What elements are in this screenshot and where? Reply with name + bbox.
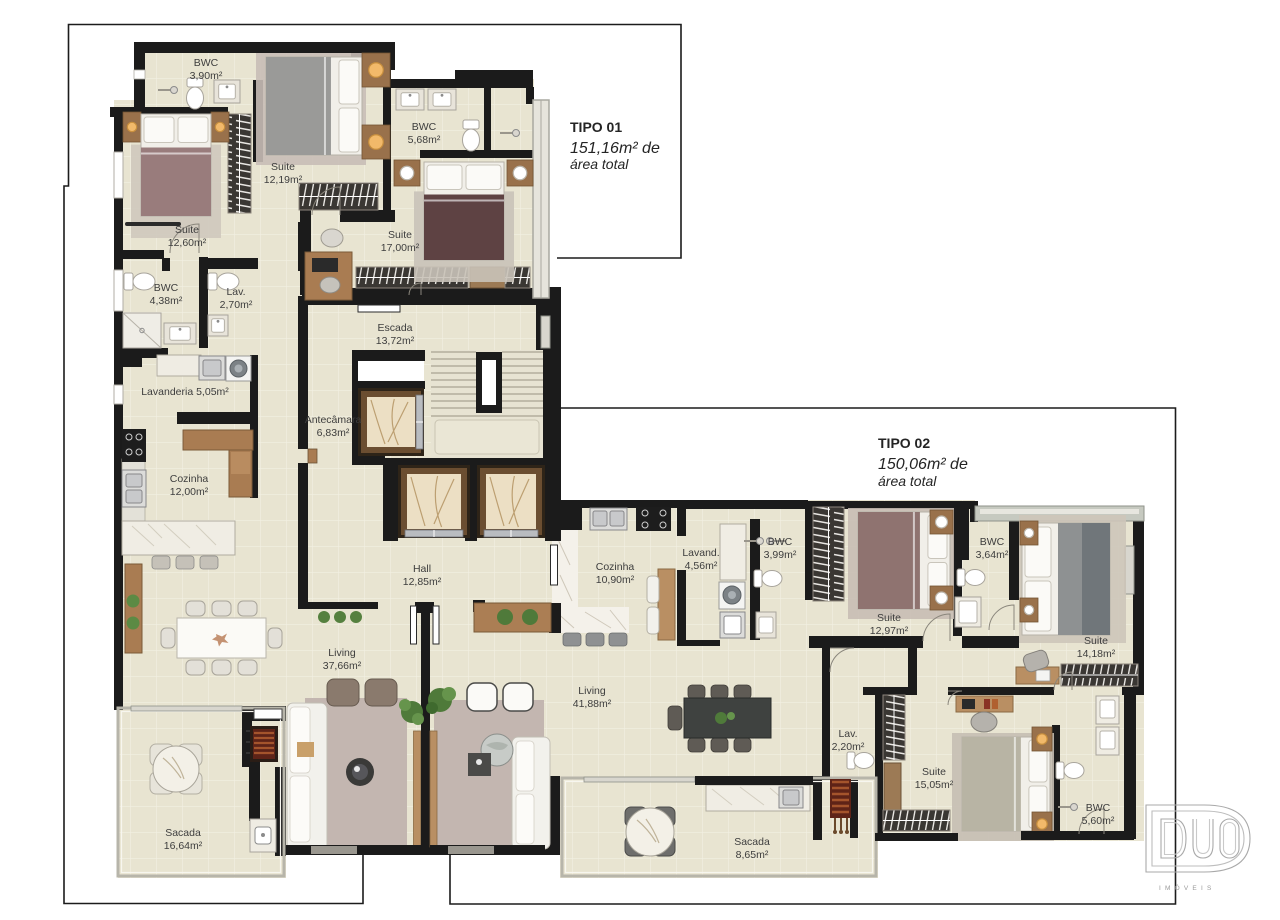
svg-text:151,16m² de: 151,16m² de (570, 140, 660, 157)
svg-text:Living: Living (328, 647, 356, 659)
svg-text:Lav.: Lav. (226, 286, 245, 298)
svg-text:área total: área total (570, 156, 629, 172)
svg-text:Suite: Suite (175, 224, 199, 236)
svg-text:Hall: Hall (413, 563, 431, 575)
svg-text:Escada: Escada (377, 322, 412, 334)
svg-text:10,90m²: 10,90m² (596, 574, 635, 586)
svg-text:3,99m²: 3,99m² (764, 549, 797, 561)
svg-text:5,60m²: 5,60m² (1082, 815, 1115, 827)
svg-text:BWC: BWC (980, 536, 1005, 548)
svg-text:BWC: BWC (768, 536, 793, 548)
svg-text:BWC: BWC (412, 121, 437, 133)
svg-text:Sacada: Sacada (734, 836, 770, 848)
svg-text:5,68m²: 5,68m² (408, 134, 441, 146)
svg-text:12,00m²: 12,00m² (170, 486, 209, 498)
svg-text:12,19m²: 12,19m² (264, 174, 303, 186)
svg-text:17,00m²: 17,00m² (381, 242, 420, 254)
svg-text:150,06m² de: 150,06m² de (878, 456, 968, 473)
svg-text:Suite: Suite (388, 229, 412, 241)
svg-text:Suite: Suite (877, 612, 901, 624)
svg-text:Suite: Suite (922, 766, 946, 778)
svg-text:Lavanderia 5,05m²: Lavanderia 5,05m² (141, 386, 229, 398)
svg-text:41,88m²: 41,88m² (573, 698, 612, 710)
svg-text:BWC: BWC (154, 282, 179, 294)
svg-text:4,56m²: 4,56m² (685, 560, 718, 572)
svg-text:BWC: BWC (194, 57, 219, 69)
svg-text:2,20m²: 2,20m² (832, 741, 865, 753)
svg-text:Antecâmara: Antecâmara (305, 414, 362, 426)
svg-text:Lavand.: Lavand. (682, 547, 719, 559)
svg-text:14,18m²: 14,18m² (1077, 648, 1116, 660)
svg-text:15,05m²: 15,05m² (915, 779, 954, 791)
svg-text:área total: área total (878, 473, 937, 489)
svg-text:4,38m²: 4,38m² (150, 295, 183, 307)
svg-text:12,60m²: 12,60m² (168, 237, 207, 249)
svg-text:Cozinha: Cozinha (170, 473, 209, 485)
svg-text:Sacada: Sacada (165, 827, 201, 839)
svg-text:3,90m²: 3,90m² (190, 70, 223, 82)
svg-text:12,97m²: 12,97m² (870, 625, 909, 637)
svg-text:Cozinha: Cozinha (596, 561, 635, 573)
svg-text:IMÓVEIS: IMÓVEIS (1159, 883, 1216, 892)
svg-text:Living: Living (578, 685, 606, 697)
svg-text:Suite: Suite (1084, 635, 1108, 647)
svg-text:TIPO 02: TIPO 02 (878, 435, 930, 451)
svg-text:3,64m²: 3,64m² (976, 549, 1009, 561)
svg-text:6,83m²: 6,83m² (317, 427, 350, 439)
svg-text:BWC: BWC (1086, 802, 1111, 814)
svg-text:Suite: Suite (271, 161, 295, 173)
svg-text:12,85m²: 12,85m² (403, 576, 442, 588)
svg-text:37,66m²: 37,66m² (323, 660, 362, 672)
svg-text:Lav.: Lav. (838, 728, 857, 740)
svg-text:16,64m²: 16,64m² (164, 840, 203, 852)
svg-text:2,70m²: 2,70m² (220, 299, 253, 311)
svg-text:13,72m²: 13,72m² (376, 335, 415, 347)
svg-text:TIPO 01: TIPO 01 (570, 119, 622, 135)
svg-text:8,65m²: 8,65m² (736, 849, 769, 861)
